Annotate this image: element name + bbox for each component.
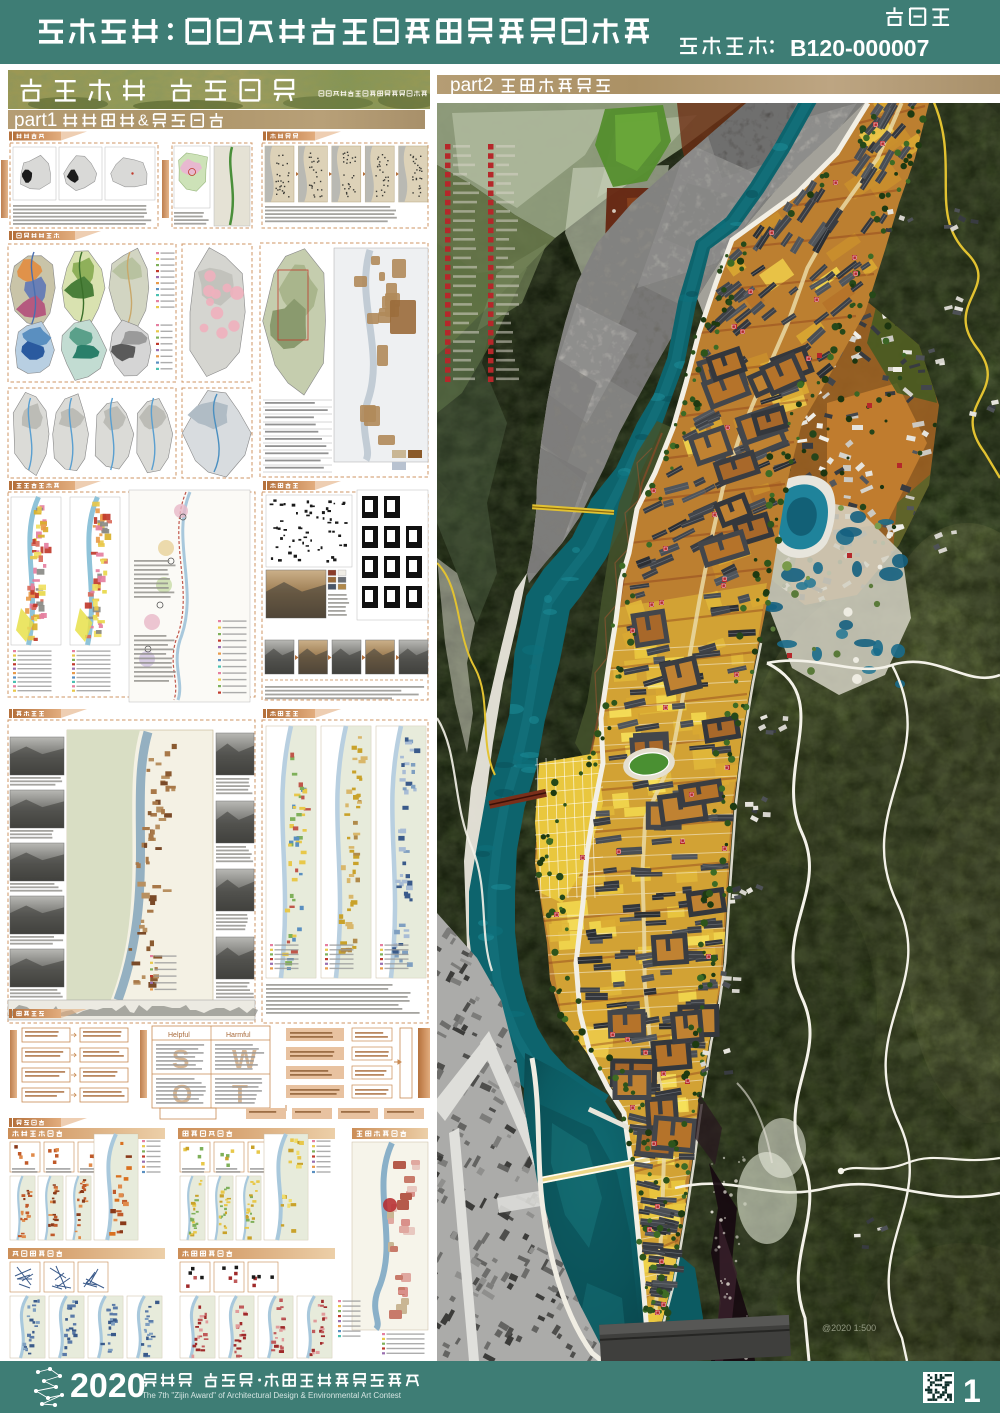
svg-text:@2020 1:500: @2020 1:500 [822, 1323, 876, 1333]
svg-text:W: W [232, 1044, 257, 1074]
svg-text:T: T [232, 1079, 248, 1109]
svg-text:S: S [172, 1044, 189, 1074]
svg-text:O: O [172, 1079, 192, 1109]
svg-text:Harmful: Harmful [226, 1032, 251, 1039]
svg-text:Helpful: Helpful [168, 1032, 190, 1039]
